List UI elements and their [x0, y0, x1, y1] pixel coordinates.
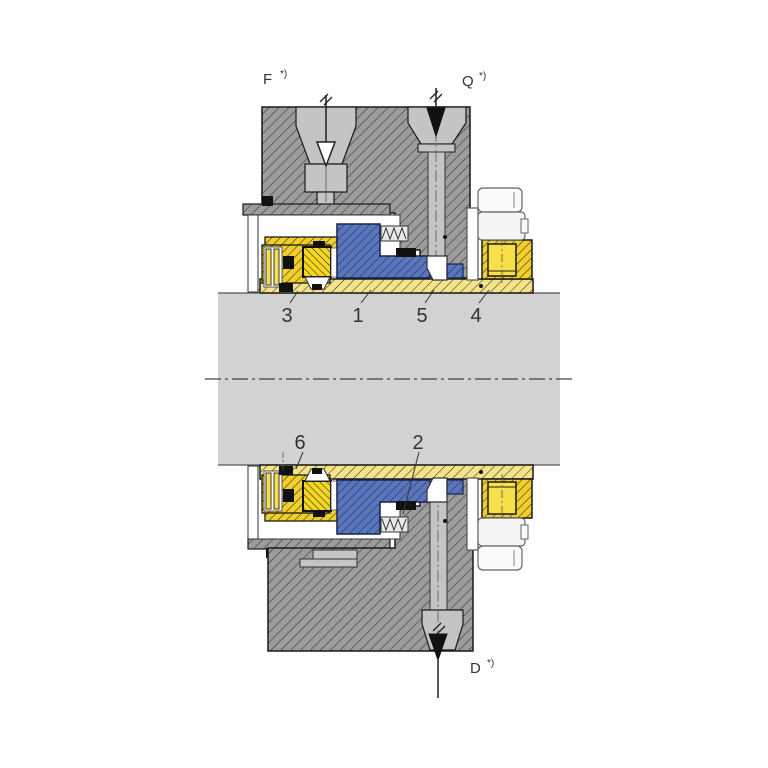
locating-pin: [262, 196, 273, 206]
callout-4: 4: [470, 305, 481, 327]
o-ring: [313, 241, 325, 248]
hex-bolt: [478, 212, 525, 240]
spring-pin: [274, 249, 279, 285]
o-ring: [279, 466, 293, 475]
svg-text:D: D: [470, 660, 481, 677]
o-ring: [283, 256, 294, 269]
lower-stationary-seat: [303, 481, 331, 511]
o-ring: [396, 248, 416, 257]
upper-stationary-seat: [303, 247, 331, 277]
svg-text:*): *): [280, 69, 287, 80]
hex-bolt: [478, 518, 525, 546]
svg-text:Q: Q: [462, 73, 474, 90]
hex-bolt: [478, 188, 522, 212]
port-d-label: D *): [470, 658, 494, 677]
o-ring: [279, 283, 293, 292]
callout-2: 2: [412, 432, 423, 454]
spring-pin: [266, 473, 271, 509]
callout-6: 6: [294, 432, 305, 454]
port-d-arrow-icon: [429, 623, 447, 698]
seal-cross-section-diagram: F *) Q *) D *) 3 1 5 4 6 2: [0, 0, 768, 768]
callout-5: 5: [416, 305, 427, 327]
port-q-label: Q *): [462, 71, 486, 90]
shaft: [205, 293, 575, 465]
callout-1: 1: [352, 305, 363, 327]
svg-text:*): *): [487, 658, 494, 669]
spring-pin: [274, 473, 279, 509]
o-ring: [313, 510, 325, 517]
svg-text:*): *): [479, 71, 486, 82]
hex-bolt: [478, 546, 522, 570]
spring-pin: [266, 249, 271, 285]
svg-text:F: F: [263, 71, 272, 88]
callout-3: 3: [281, 305, 292, 327]
port-f-label: F *): [263, 69, 287, 88]
diagram-canvas: F *) Q *) D *) 3 1 5 4 6 2: [0, 0, 768, 768]
o-ring: [283, 489, 294, 502]
